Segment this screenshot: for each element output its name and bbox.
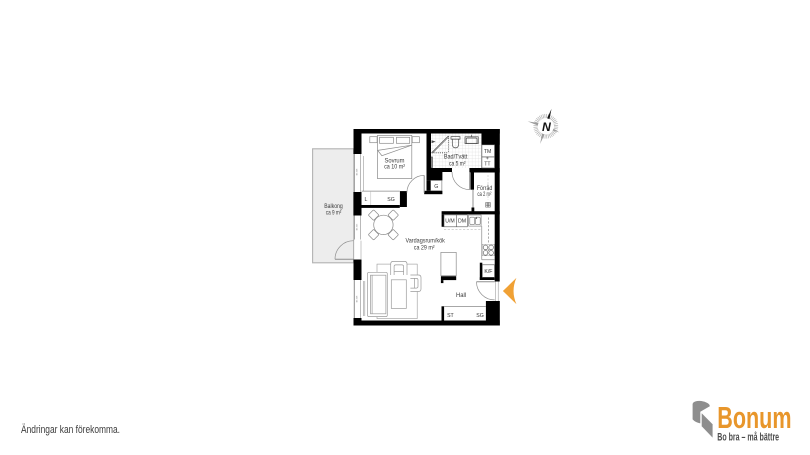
svg-text:TM: TM xyxy=(484,149,492,155)
svg-text:G: G xyxy=(434,184,438,190)
svg-text:SG: SG xyxy=(476,313,484,319)
svg-text:ca 10 m²: ca 10 m² xyxy=(384,164,405,171)
svg-text:ca 29 m²: ca 29 m² xyxy=(414,244,435,251)
svg-text:DM: DM xyxy=(458,218,466,224)
svg-text:ca 2 m²: ca 2 m² xyxy=(477,191,491,198)
svg-text:Hall: Hall xyxy=(456,292,466,299)
svg-text:SG: SG xyxy=(387,197,395,203)
svg-text:K/F: K/F xyxy=(484,269,492,275)
svg-text:U/M: U/M xyxy=(445,218,455,224)
svg-text:ca 9 m²: ca 9 m² xyxy=(326,209,342,216)
svg-text:B9-508: B9-508 xyxy=(356,295,358,302)
svg-text:Ändringar kan förekomma.: Ändringar kan förekomma. xyxy=(21,424,120,436)
svg-text:ST: ST xyxy=(447,313,454,319)
svg-text:L: L xyxy=(365,197,368,203)
svg-text:N: N xyxy=(542,120,552,134)
svg-text:B9-505: B9-505 xyxy=(356,223,358,230)
svg-text:Bo bra – må bättre: Bo bra – må bättre xyxy=(717,432,779,444)
svg-text:Vardagsrum/kök: Vardagsrum/kök xyxy=(406,237,446,244)
svg-text:TT: TT xyxy=(484,161,491,167)
svg-text:B9-508: B9-508 xyxy=(356,168,358,175)
svg-text:Bonum: Bonum xyxy=(717,400,791,435)
svg-text:ca 5 m²: ca 5 m² xyxy=(449,160,466,167)
